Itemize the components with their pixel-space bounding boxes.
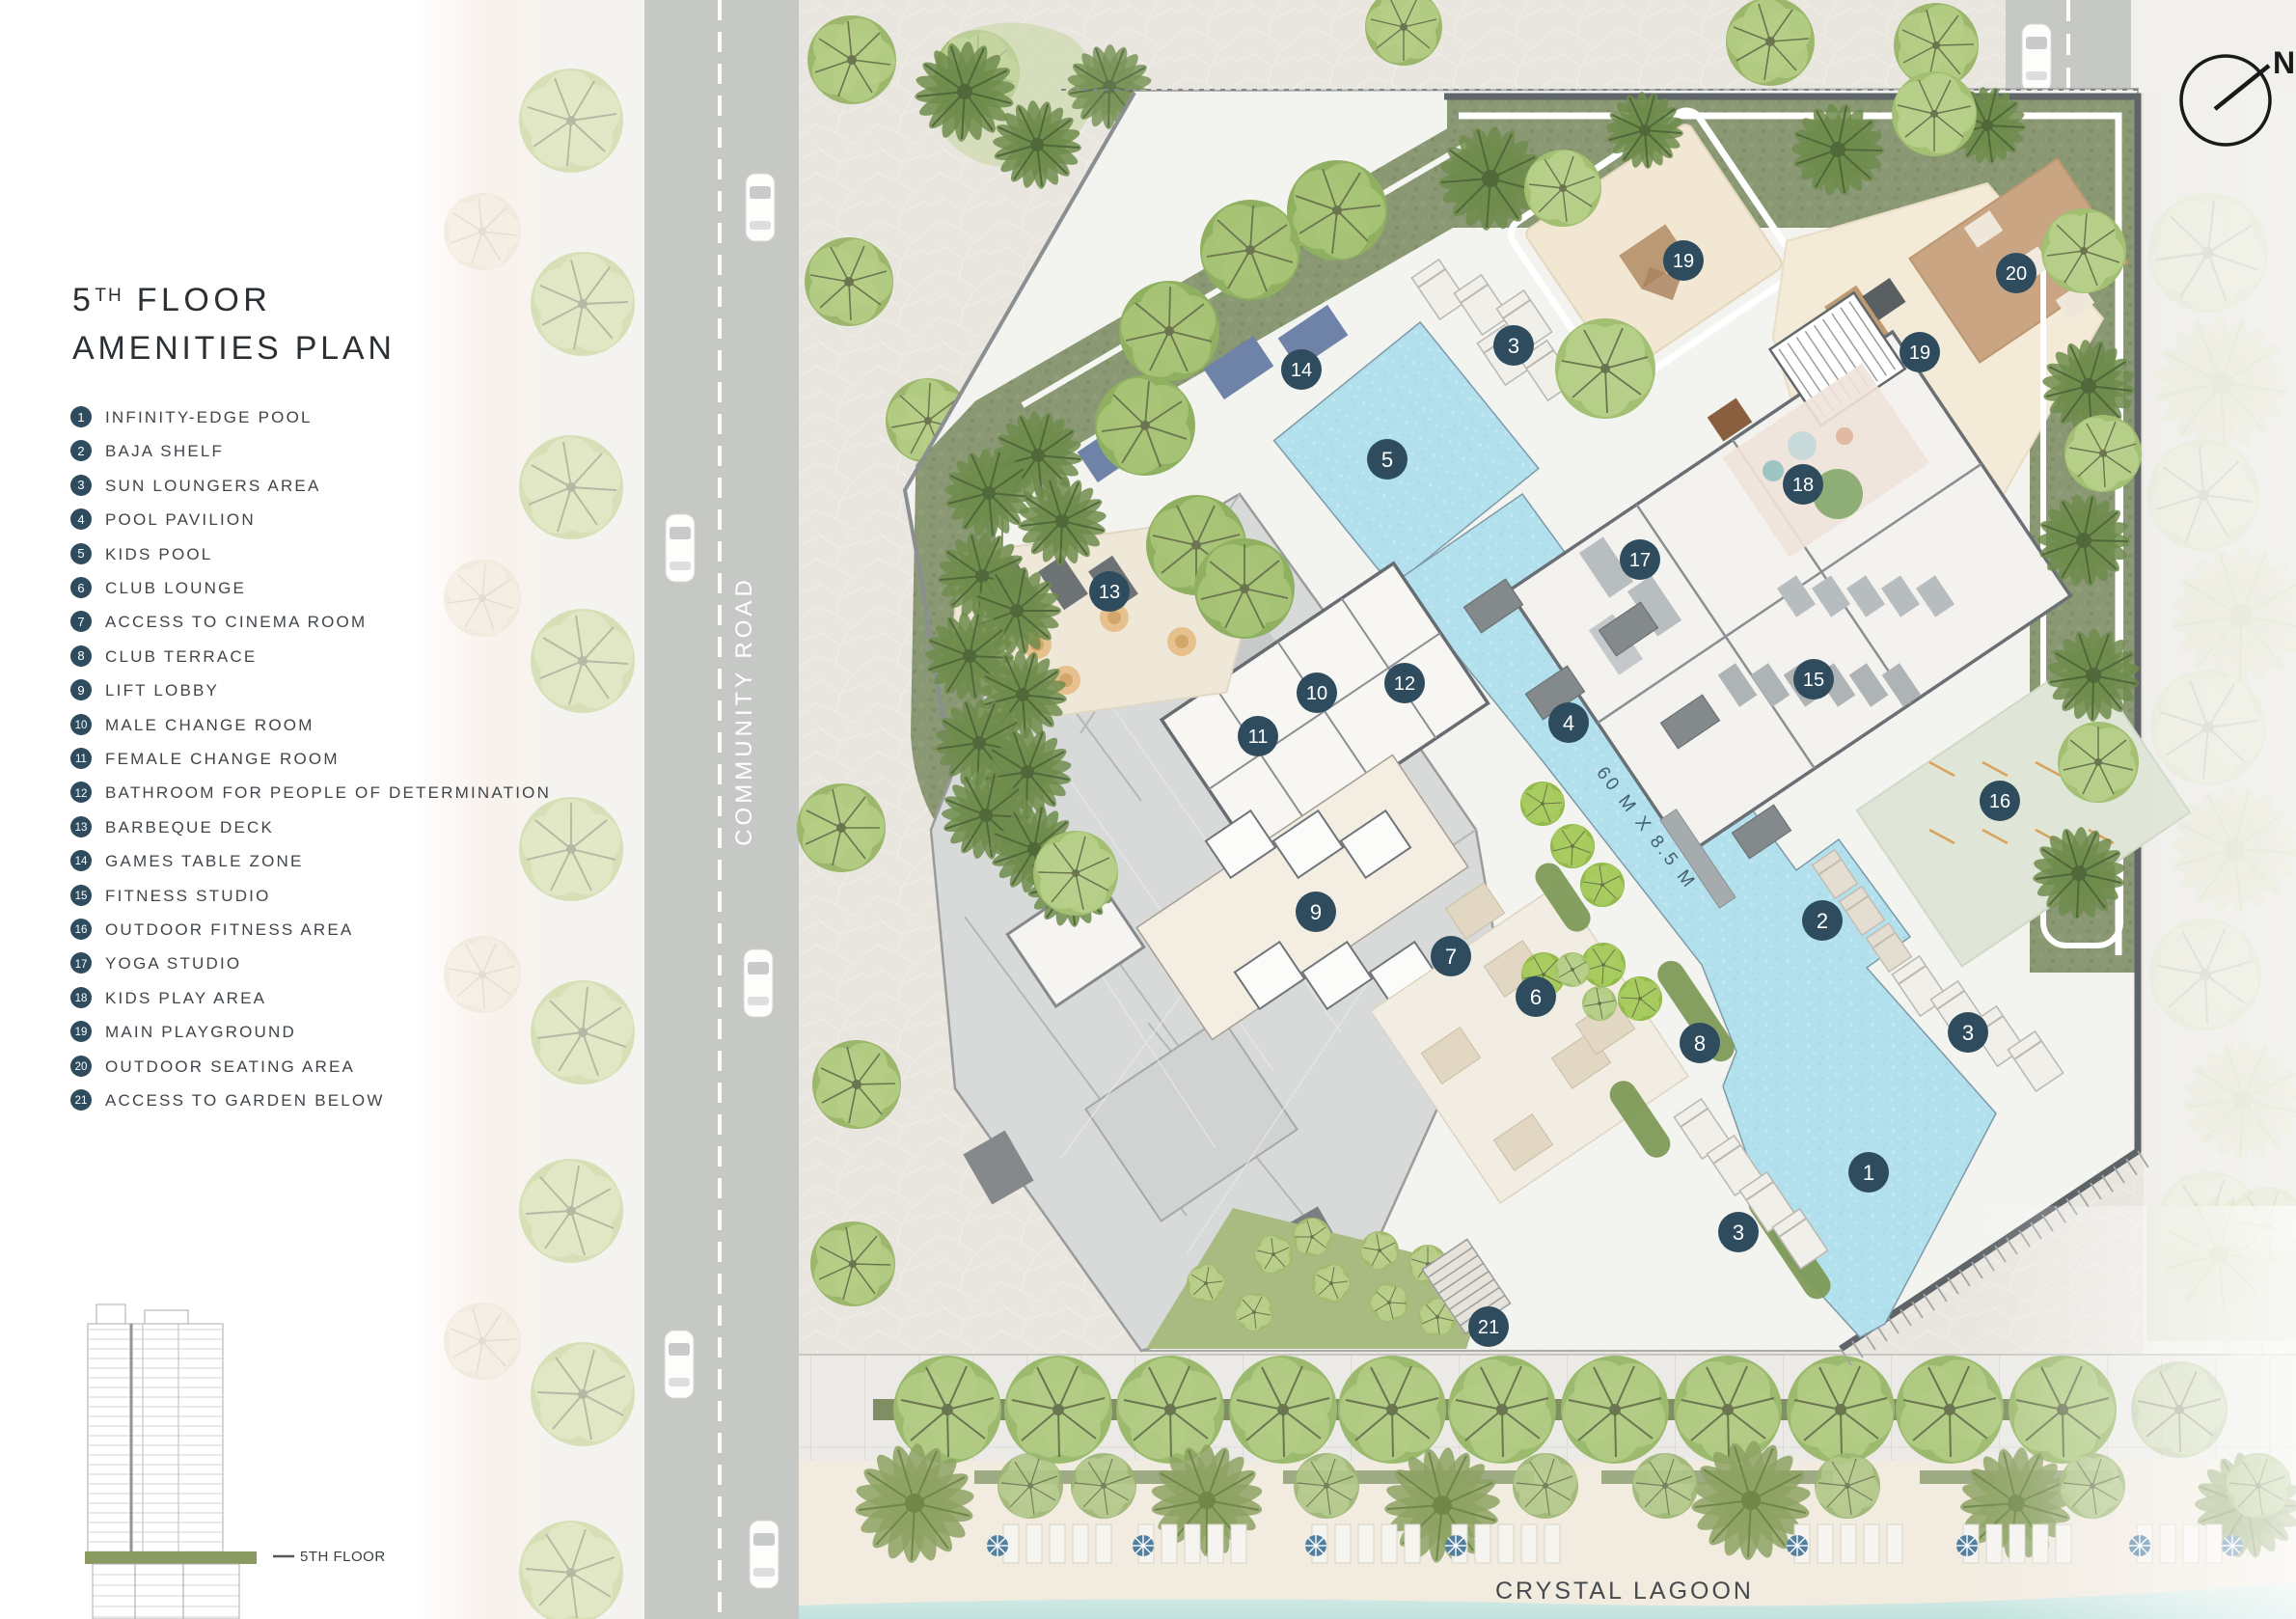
svg-text:16: 16	[75, 924, 88, 936]
svg-text:12: 12	[75, 788, 88, 800]
svg-text:CLUB LOUNGE: CLUB LOUNGE	[105, 579, 246, 597]
svg-text:COMMUNITY ROAD: COMMUNITY ROAD	[731, 576, 757, 846]
svg-text:ACCESS TO CINEMA ROOM: ACCESS TO CINEMA ROOM	[105, 613, 367, 631]
svg-text:15: 15	[75, 891, 88, 902]
svg-text:3: 3	[77, 478, 84, 492]
svg-text:OUTDOOR FITNESS AREA: OUTDOOR FITNESS AREA	[105, 920, 353, 939]
svg-text:3: 3	[1508, 334, 1519, 358]
svg-text:16: 16	[1989, 791, 2010, 812]
svg-text:8: 8	[77, 648, 84, 663]
svg-text:CLUB TERRACE: CLUB TERRACE	[105, 647, 257, 666]
svg-text:14: 14	[75, 856, 88, 867]
svg-text:7: 7	[77, 615, 84, 629]
svg-text:YOGA STUDIO: YOGA STUDIO	[105, 954, 241, 973]
svg-text:20: 20	[75, 1061, 88, 1073]
svg-text:14: 14	[1291, 360, 1312, 381]
svg-text:11: 11	[1248, 727, 1269, 748]
svg-text:6: 6	[77, 581, 84, 595]
svg-text:17: 17	[1629, 550, 1651, 571]
svg-text:BARBEQUE DECK: BARBEQUE DECK	[105, 818, 274, 837]
svg-text:5TH FLOOR: 5TH FLOOR	[300, 1549, 386, 1565]
svg-text:15: 15	[1803, 670, 1824, 691]
svg-text:LIFT LOBBY: LIFT LOBBY	[105, 681, 219, 700]
svg-text:10: 10	[1306, 683, 1327, 704]
svg-text:CRYSTAL LAGOON: CRYSTAL LAGOON	[1495, 1578, 1754, 1605]
svg-text:ACCESS TO GARDEN BELOW: ACCESS TO GARDEN BELOW	[105, 1091, 385, 1110]
svg-text:3: 3	[1962, 1021, 1974, 1045]
svg-text:4: 4	[1563, 711, 1574, 735]
svg-text:18: 18	[1792, 475, 1814, 496]
svg-text:21: 21	[1478, 1317, 1499, 1338]
svg-text:N: N	[2273, 45, 2295, 80]
svg-text:19: 19	[1909, 343, 1930, 364]
svg-text:20: 20	[2006, 263, 2027, 285]
svg-text:FEMALE CHANGE ROOM: FEMALE CHANGE ROOM	[105, 750, 340, 768]
svg-text:17: 17	[75, 959, 88, 971]
svg-text:21: 21	[75, 1095, 88, 1107]
svg-text:MALE CHANGE ROOM: MALE CHANGE ROOM	[105, 716, 314, 734]
svg-text:7: 7	[1445, 945, 1457, 969]
svg-text:AMENITIES PLAN: AMENITIES PLAN	[72, 330, 396, 367]
svg-text:KIDS POOL: KIDS POOL	[105, 545, 212, 563]
svg-text:POOL PAVILION: POOL PAVILION	[105, 510, 256, 529]
svg-text:11: 11	[75, 754, 87, 765]
svg-text:1: 1	[1863, 1161, 1874, 1185]
svg-text:19: 19	[1673, 251, 1694, 272]
svg-text:2: 2	[1817, 909, 1828, 933]
svg-text:9: 9	[1310, 900, 1322, 924]
svg-text:1: 1	[77, 410, 84, 425]
svg-text:MAIN PLAYGROUND: MAIN PLAYGROUND	[105, 1023, 296, 1041]
svg-text:12: 12	[1394, 673, 1415, 695]
svg-text:6: 6	[1530, 985, 1542, 1009]
svg-text:KIDS PLAY AREA: KIDS PLAY AREA	[105, 989, 266, 1007]
svg-text:BAJA SHELF: BAJA SHELF	[105, 442, 224, 460]
svg-text:SUN LOUNGERS AREA: SUN LOUNGERS AREA	[105, 477, 321, 495]
svg-text:FITNESS STUDIO: FITNESS STUDIO	[105, 887, 271, 905]
svg-text:19: 19	[75, 1027, 88, 1038]
svg-text:BATHROOM FOR PEOPLE OF DETERMI: BATHROOM FOR PEOPLE OF DETERMINATION	[105, 783, 551, 802]
svg-text:3: 3	[1733, 1221, 1744, 1245]
svg-text:OUTDOOR SEATING AREA: OUTDOOR SEATING AREA	[105, 1057, 355, 1076]
svg-text:GAMES TABLE ZONE: GAMES TABLE ZONE	[105, 852, 304, 870]
svg-text:5: 5	[77, 546, 84, 561]
svg-text:5: 5	[1381, 448, 1393, 472]
svg-text:4: 4	[77, 512, 84, 527]
svg-text:13: 13	[75, 822, 88, 834]
svg-text:10: 10	[75, 720, 88, 731]
svg-text:INFINITY-EDGE POOL: INFINITY-EDGE POOL	[105, 408, 313, 426]
svg-text:8: 8	[1694, 1031, 1706, 1056]
svg-text:18: 18	[75, 993, 88, 1004]
svg-text:9: 9	[77, 683, 84, 698]
svg-text:2: 2	[77, 444, 84, 458]
svg-text:13: 13	[1099, 582, 1120, 603]
